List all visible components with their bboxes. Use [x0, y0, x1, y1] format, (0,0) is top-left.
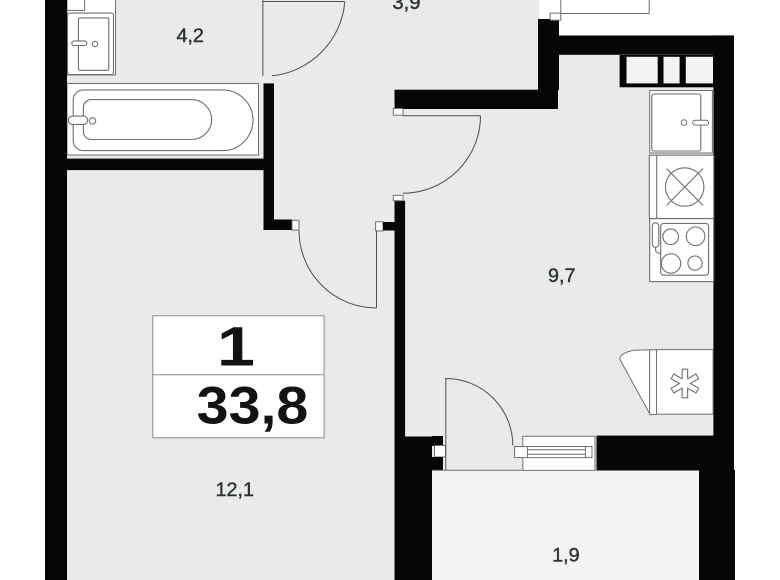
svg-text:9,7: 9,7: [548, 265, 576, 287]
svg-text:1: 1: [217, 315, 255, 378]
svg-text:12,1: 12,1: [216, 479, 255, 501]
svg-text:4,2: 4,2: [176, 25, 204, 47]
svg-text:3,9: 3,9: [392, 0, 420, 14]
svg-text:1,9: 1,9: [552, 545, 580, 567]
svg-text:33,8: 33,8: [197, 376, 309, 435]
